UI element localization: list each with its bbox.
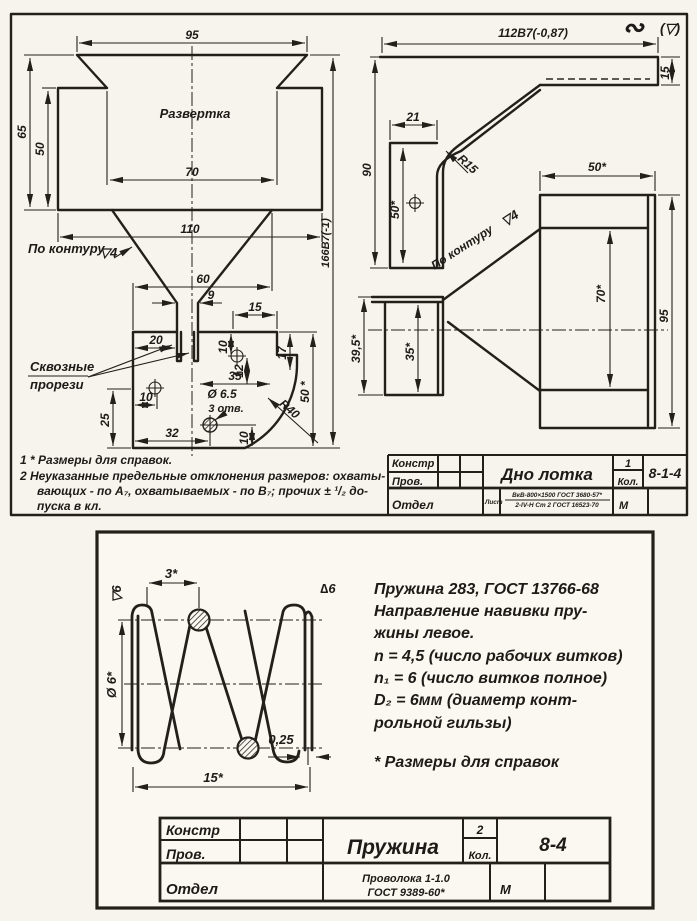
spec-line6: D₂ = 6мм (диаметр конт- <box>374 692 577 709</box>
dim-15-profile: 15 <box>658 66 672 80</box>
dim-65: 65 <box>15 125 29 139</box>
dim-50: 50 <box>33 142 47 156</box>
scanned-drawing-page: ∾ (▽) Развертка 95 65 50 70 <box>0 0 697 921</box>
tb2-row-konstr: Констр <box>166 822 220 838</box>
sheet-spring: 3* ▽6 ∆6 Ø 6* 0,25 15* Пружина 283, ГОСТ… <box>0 521 697 921</box>
dim-35: 35 <box>228 369 242 383</box>
tb2-scale: М <box>500 882 512 897</box>
tb1-material-line2: 2-IV-Н Ст 2 ГОСТ 16523-70 <box>514 502 599 509</box>
dim-70-star: 70* <box>594 284 608 303</box>
note-line4: пуска в кл. <box>37 499 102 513</box>
dim-39-5: 39,5* <box>349 334 363 363</box>
profile-views: 112В7(-0,87) 15 21 90 50* R15 По контуру… <box>349 26 680 428</box>
rest-roughness-paren: (▽) <box>660 20 680 36</box>
dim-112: 112В7(-0,87) <box>498 26 568 40</box>
wire-section-top <box>189 610 210 631</box>
contour-note-dev: По контуру <box>28 241 105 256</box>
dim-pitch-3: 3* <box>165 566 178 581</box>
note-line2: 2 Неуказанные предельные отклонения разм… <box>19 469 385 483</box>
tb1-title: Дно лотка <box>499 465 593 484</box>
dim-gap-025: 0,25 <box>268 732 294 747</box>
dim-90: 90 <box>360 163 374 177</box>
profile-top-strip <box>380 57 658 85</box>
spec-line2: Направление навивки пру- <box>374 603 587 620</box>
notes-block: 1 * Размеры для справок. 2 Неуказанные п… <box>19 453 385 513</box>
dim-length-15: 15* <box>203 770 223 785</box>
contour-flag-profile: ▽4 <box>499 206 522 228</box>
note-line1: 1 * Размеры для справок. <box>20 453 172 467</box>
rest-roughness-mark: ∾ <box>622 12 645 42</box>
tb1-row-otdel: Отдел <box>392 498 434 512</box>
tb2-title: Пружина <box>347 836 439 859</box>
dim-110: 110 <box>180 222 199 236</box>
tb1-doc-number: 8-1-4 <box>649 465 682 481</box>
spec-line7: рольной гильзы) <box>373 715 512 732</box>
tb1-qty-label: Кол. <box>618 477 639 488</box>
roughness-left: ▽6 <box>109 585 124 603</box>
dim-17: 17 <box>275 345 289 360</box>
dim-95: 95 <box>185 28 199 42</box>
dim-25: 25 <box>98 413 112 428</box>
dim-50-star: 50 * <box>298 380 312 403</box>
spec-line3: жины левое. <box>373 625 474 642</box>
dim-hole-diameter: Ø 6.5 <box>207 387 237 401</box>
tb2-qty-label: Кол. <box>469 850 492 862</box>
tb2-qty-value: 2 <box>476 823 484 837</box>
sheet-tray-bottom: ∾ (▽) Развертка 95 65 50 70 <box>0 0 697 521</box>
tb1-scale: М <box>619 500 629 512</box>
dim-diameter-6: Ø 6* <box>104 671 119 698</box>
dim-r15: R15 <box>455 151 481 176</box>
tb1-row-konstr: Констр <box>392 458 435 470</box>
spec-line4: n = 4,5 (число рабочих витков) <box>374 648 623 665</box>
dim-60: 60 <box>196 272 210 286</box>
roughness-right: ∆6 <box>320 581 336 596</box>
dim-70: 70 <box>185 165 199 179</box>
hole-profile <box>406 194 424 212</box>
tb2-doc-number: 8-4 <box>539 835 567 856</box>
dim-50-star-b: 50* <box>588 160 607 174</box>
tb1-row-prov: Пров. <box>392 476 423 488</box>
dim-9: 9 <box>208 288 215 302</box>
spec-line5: n₁ = 6 (число витков полное) <box>374 670 607 687</box>
slots-note-line1: Сквозные <box>30 359 94 374</box>
side-view-outline <box>540 195 655 428</box>
spec-line1: Пружина 283, ГОСТ 13766-68 <box>374 581 599 598</box>
dim-10-bottom: 10 <box>237 431 251 445</box>
dim-35-star: 35* <box>403 342 417 361</box>
tb2-row-prov: Пров. <box>166 846 206 862</box>
tb2-row-otdel: Отдел <box>166 881 219 898</box>
dim-32: 32 <box>165 426 179 440</box>
dim-50-star-leg: 50* <box>388 200 402 219</box>
tb2-material-line2: ГОСТ 9389-60* <box>367 887 445 899</box>
wire-section-bottom <box>238 738 259 759</box>
contour-note-profile: По контуру <box>428 221 496 272</box>
sheet1-frame <box>11 14 687 515</box>
dim-95-side: 95 <box>657 309 671 323</box>
slots-note-line2: прорези <box>30 377 84 392</box>
title-block-1: Констр Пров. Отдел Дно лотка 1 Кол. 8-1-… <box>388 455 688 515</box>
spec-footnote: * Размеры для справок <box>374 754 560 771</box>
note-line3: вающих - по А₇, охватываемых - по В₇; пр… <box>37 484 368 498</box>
dim-hole-qty: 3 отв. <box>208 403 243 415</box>
development-title: Развертка <box>160 106 231 121</box>
tb1-qty-value: 1 <box>625 458 631 470</box>
dim-15: 15 <box>248 300 262 314</box>
development-view: Развертка 95 65 50 70 110 60 9 20 <box>15 28 340 456</box>
tb2-material-line1: Проволока 1-1.0 <box>362 873 451 885</box>
dim-10-left: 10 <box>139 390 153 404</box>
dim-10-tab: 10 <box>216 340 230 354</box>
dim-20: 20 <box>148 333 163 347</box>
tb1-material-line1: ВкВ-800×1500 ГОСТ 3680-57* <box>512 492 602 499</box>
dim-21: 21 <box>405 110 420 124</box>
dim-overall-height: 166В7(-1) <box>320 218 332 268</box>
development-outline-top <box>58 55 322 210</box>
tb1-material-label: Лист <box>484 499 503 506</box>
